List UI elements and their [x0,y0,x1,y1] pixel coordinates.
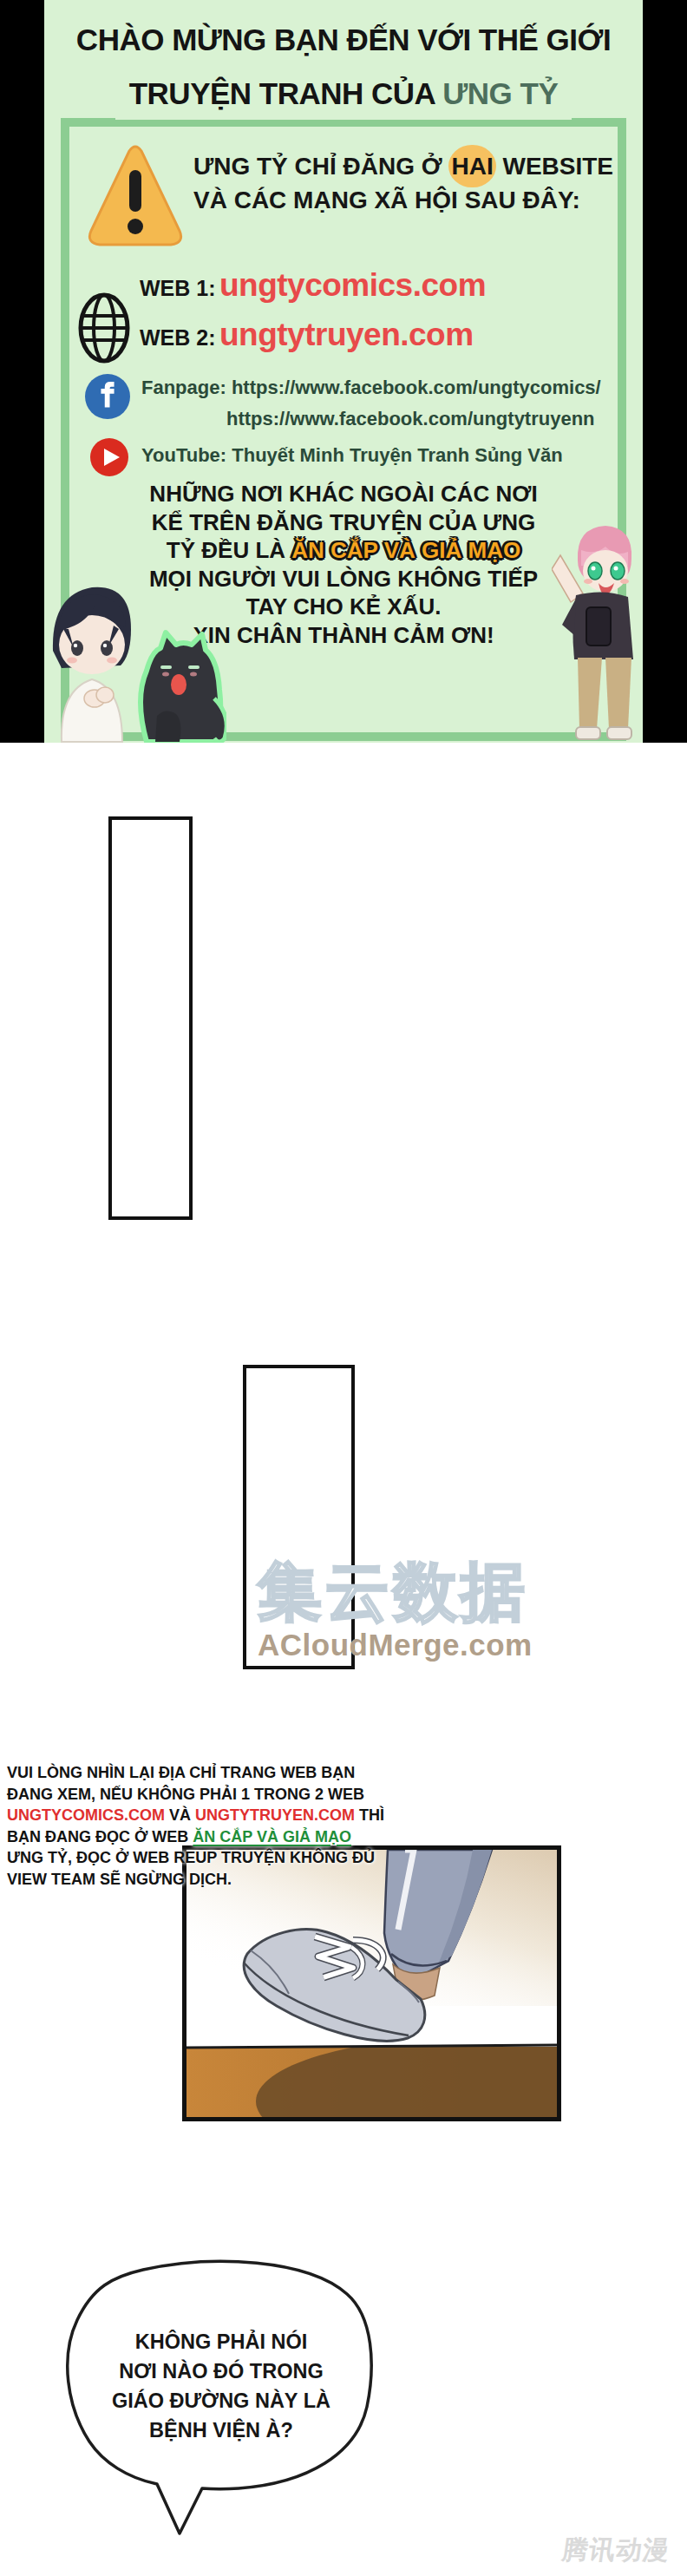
watermark-site-text: ACloudMerge.com [258,1628,533,1662]
fanpage-url2: https://www.facebook.com/ungtytruyenn [226,408,595,429]
web2-label: WEB 2: [140,325,216,350]
highlight-hai: HAI [448,145,495,187]
shoe-artwork [186,1850,557,2117]
speech-bubble-text: KHÔNG PHẢI NÓI NƠI NÀO ĐÓ TRONG GIÁO ĐƯỜ… [95,2327,347,2445]
web2-url: ungtytruyen.com [219,317,474,352]
watermark-cjk-text: 集云数据 [258,1550,533,1636]
header-green-area: CHÀO MỪNG BẠN ĐẾN VỚI THẾ GIỚI TRUYỆN TR… [44,0,643,743]
youtube-channel: Thuyết Minh Truyện Tranh Sủng Văn [232,444,562,466]
youtube-line: YouTube: Thuyết Minh Truyện Tranh Sủng V… [141,444,563,467]
stolen-fake-accent: ĂN CẮP VÀ GIẢ MẠO [291,537,520,563]
website-reminder-notice: VUI LÒNG NHÌN LẠI ĐỊA CHỈ TRANG WEB BẠN … [7,1762,354,1890]
fanpage-label: Fanpage: [141,377,226,398]
page-title-line2: TRUYỆN TRANH CỦA ƯNG TỶ [44,76,643,120]
pink-hair-character-illustration [552,521,643,743]
youtube-label: YouTube: [141,444,226,466]
warning-icon [88,144,183,250]
globe-icon [77,292,131,364]
web1-label: WEB 1: [140,276,216,300]
corner-watermark: 腾讯动漫 [559,2533,672,2568]
web2-row: WEB 2: ungtytruyen.com [140,317,474,353]
center-watermark: 集云数据 ACloudMerge.com [258,1550,533,1662]
notice-stolen-fake: ĂN CẮP VÀ GIẢ MẠO [193,1828,351,1845]
fanpage-line2: https://www.facebook.com/ungtytruyenn [226,408,595,430]
boy-and-cat-illustration [44,568,226,743]
author-name: ƯNG TỶ [442,76,558,110]
header-section: CHÀO MỪNG BẠN ĐẾN VỚI THẾ GIỚI TRUYỆN TR… [0,0,687,743]
warning-text: ƯNG TỶ CHỈ ĐĂNG Ở HAI WEBSITE VÀ CÁC MẠN… [193,149,613,217]
notice-url2: UNGTYTRUYEN.COM [195,1806,355,1824]
page-title-line1: CHÀO MỪNG BẠN ĐẾN VỚI THẾ GIỚI [44,23,643,57]
page-title-line2-text: TRUYỆN TRANH CỦA [129,76,443,110]
web1-url: ungtycomics.com [219,267,486,303]
facebook-icon [84,373,131,420]
empty-panel-1 [108,816,193,1220]
web1-row: WEB 1: ungtycomics.com [140,267,486,304]
fanpage-url1: https://www.facebook.com/ungtycomics/ [232,377,601,398]
youtube-icon [89,437,129,477]
notice-url1: UNGTYCOMICS.COM [7,1806,165,1824]
fanpage-line1: Fanpage: https://www.facebook.com/ungtyc… [141,377,601,399]
